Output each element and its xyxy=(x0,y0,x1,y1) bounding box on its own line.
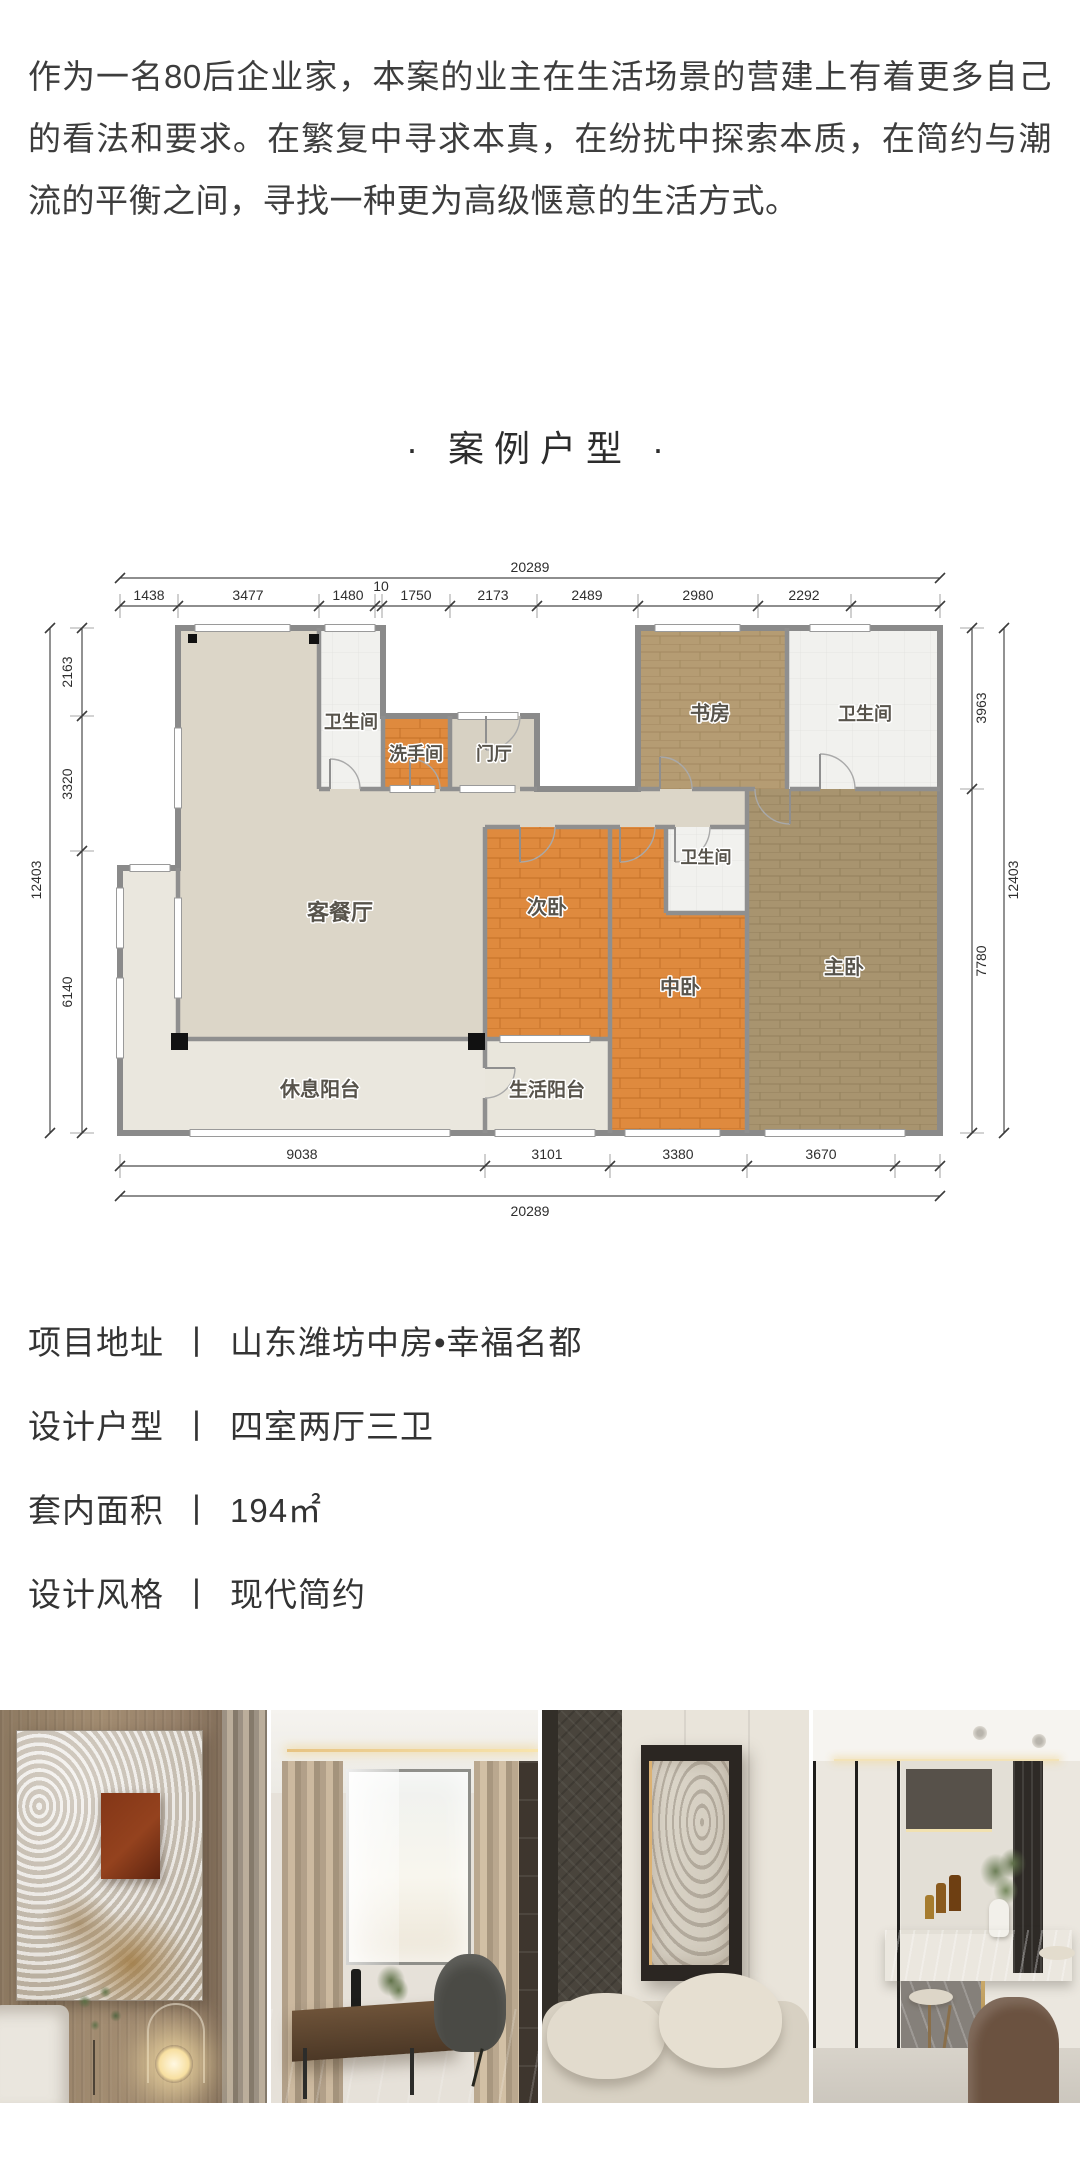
desk-leg xyxy=(303,2048,307,2099)
svg-text:1750: 1750 xyxy=(400,587,431,603)
svg-text:3477: 3477 xyxy=(232,587,263,603)
project-info: 项目地址 丨 山东潍坊中房•幸福名都 设计户型 丨 四室两厅三卫 套内面积 丨 … xyxy=(28,1298,1052,1634)
dim-top-total: 20289 xyxy=(511,559,550,575)
label-bath-mid: 卫生间 xyxy=(681,847,732,867)
label-second-bedroom: 次卧 xyxy=(527,895,567,919)
svg-text:7780: 7780 xyxy=(973,945,989,976)
desk-plant xyxy=(372,1962,409,2009)
floor-plan-svg: 客餐厅 卫生间 洗手间 门厅 书房 卫生间 卫生间 次卧 中卧 主卧 休息阳台 … xyxy=(20,548,1060,1248)
info-row-layout: 设计户型 丨 四室两厅三卫 xyxy=(28,1382,1052,1466)
info-value: 山东潍坊中房•幸福名都 xyxy=(230,1316,583,1364)
rust-square-accent xyxy=(101,1793,160,1879)
label-washroom: 洗手间 xyxy=(389,743,443,764)
label-rest-balcony: 休息阳台 xyxy=(279,1077,360,1101)
svg-text:3101: 3101 xyxy=(531,1146,562,1162)
floor-plan: 客餐厅 卫生间 洗手间 门厅 书房 卫生间 卫生间 次卧 中卧 主卧 休息阳台 … xyxy=(20,548,1060,1248)
room-bath-mid xyxy=(666,827,747,913)
room-rest-balcony xyxy=(120,868,178,1133)
hallway xyxy=(319,789,747,827)
bar-stool xyxy=(1039,1946,1075,1960)
info-separator: 丨 xyxy=(180,1484,214,1532)
svg-text:3963: 3963 xyxy=(973,692,989,723)
info-value: 四室两厅三卫 xyxy=(230,1400,434,1448)
sofa-cushion xyxy=(659,1973,782,2067)
desk-leg xyxy=(410,2048,414,2095)
label-living-dining: 客餐厅 xyxy=(307,900,373,925)
info-label: 套内面积 xyxy=(28,1484,164,1532)
intro-paragraph: 作为一名80后企业家，本案的业主在生活场景的营建上有着更多自己的看法和要求。在繁… xyxy=(28,46,1052,232)
dim-right-total: 12403 xyxy=(1005,860,1021,899)
svg-text:2173: 2173 xyxy=(477,587,508,603)
photo-strip xyxy=(0,1710,1080,2103)
svg-text:2980: 2980 xyxy=(682,587,713,603)
svg-text:3380: 3380 xyxy=(662,1146,693,1162)
wall-cabinet xyxy=(906,1769,991,1832)
photo-dining-bar-island xyxy=(813,1710,1080,2103)
label-master-bedroom: 主卧 xyxy=(824,955,864,979)
photo-living-room-relief-art xyxy=(542,1710,809,2103)
sheer-curtain xyxy=(346,1769,399,1966)
bottle xyxy=(949,1875,961,1911)
info-separator: 丨 xyxy=(180,1400,214,1448)
sphere-lamp xyxy=(155,2045,193,2083)
label-service-balcony: 生活阳台 xyxy=(509,1078,585,1101)
chair xyxy=(434,1954,506,2052)
room-second-bedroom xyxy=(485,827,610,1039)
photo-study-room xyxy=(271,1710,538,2103)
svg-text:9038: 9038 xyxy=(286,1146,317,1162)
info-value: 194㎡ xyxy=(230,1484,322,1532)
svg-text:10: 10 xyxy=(373,578,389,594)
dim-left-total: 12403 xyxy=(28,860,44,899)
section-title: · 案例户型 · xyxy=(0,420,1080,472)
label-middle-bedroom: 中卧 xyxy=(660,975,700,999)
svg-text:2489: 2489 xyxy=(571,587,602,603)
info-value: 现代简约 xyxy=(230,1568,366,1616)
room-bath-top xyxy=(319,628,383,789)
label-foyer: 门厅 xyxy=(476,743,512,764)
info-separator: 丨 xyxy=(180,1568,214,1616)
label-bath-top: 卫生间 xyxy=(324,711,378,732)
dim-bottom-total: 20289 xyxy=(511,1203,550,1219)
bottle xyxy=(936,1883,946,1913)
svg-text:3670: 3670 xyxy=(805,1146,836,1162)
label-bath-right: 卫生间 xyxy=(838,703,892,724)
svg-text:1438: 1438 xyxy=(133,587,164,603)
info-separator: 丨 xyxy=(180,1316,214,1364)
headboard xyxy=(0,2005,69,2103)
svg-text:1480: 1480 xyxy=(332,587,363,603)
info-row-area: 套内面积 丨 194㎡ xyxy=(28,1466,1052,1550)
info-row-address: 项目地址 丨 山东潍坊中房•幸福名都 xyxy=(28,1298,1052,1382)
svg-text:2163: 2163 xyxy=(59,656,75,687)
info-label: 项目地址 xyxy=(28,1316,164,1364)
cove-light xyxy=(287,1749,538,1752)
label-study: 书房 xyxy=(690,701,730,725)
info-row-style: 设计风格 丨 现代简约 xyxy=(28,1550,1052,1634)
bottle xyxy=(925,1895,934,1919)
photo-bedroom-artwork-wall xyxy=(0,1710,267,2103)
curtain xyxy=(222,1710,267,2103)
sofa-cushion xyxy=(547,1993,664,2079)
info-label: 设计户型 xyxy=(28,1400,164,1448)
plant xyxy=(64,1973,133,2067)
brown-chair xyxy=(968,1997,1059,2103)
relief-artwork xyxy=(649,1761,729,1965)
spotlight xyxy=(1032,1734,1046,1748)
svg-text:2292: 2292 xyxy=(788,587,819,603)
spotlight xyxy=(973,1726,987,1740)
room-living-dining xyxy=(178,628,319,789)
svg-text:3320: 3320 xyxy=(59,768,75,799)
svg-text:6140: 6140 xyxy=(59,976,75,1007)
room-floors xyxy=(120,628,940,1133)
info-label: 设计风格 xyxy=(28,1568,164,1616)
bar-stool xyxy=(909,1989,953,2005)
article-page: 作为一名80后企业家，本案的业主在生活场景的营建上有着更多自己的看法和要求。在繁… xyxy=(0,0,1080,2168)
